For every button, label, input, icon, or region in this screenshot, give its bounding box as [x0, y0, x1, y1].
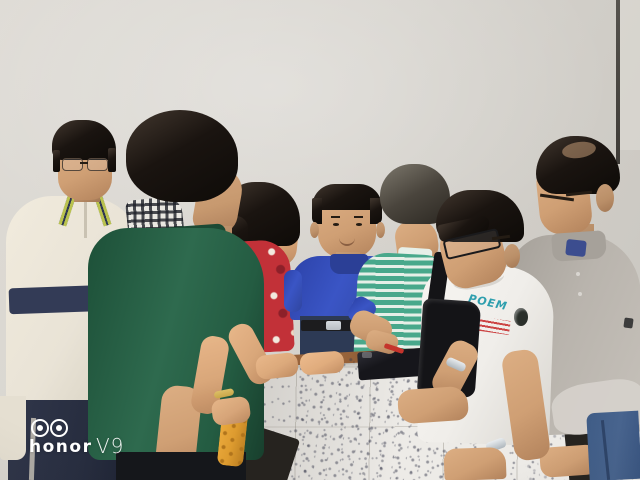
- camera-lens-icon-left: [31, 419, 49, 437]
- photo-vignette: [0, 0, 640, 480]
- photograph: POEM honor V9: [0, 0, 640, 480]
- watermark-model: V9: [96, 434, 124, 458]
- camera-lens-icon-right: [50, 419, 68, 437]
- watermark-brand: honor: [29, 437, 92, 457]
